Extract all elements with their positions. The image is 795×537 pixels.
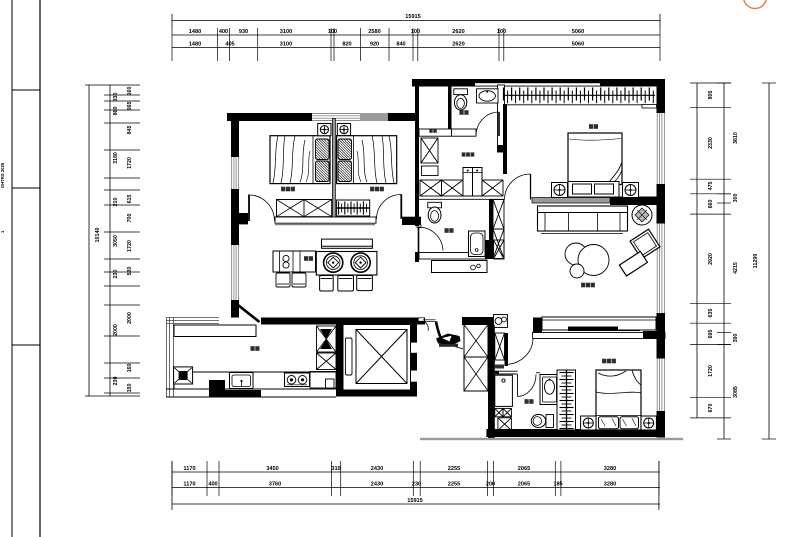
svg-text:475: 475 <box>708 182 714 191</box>
svg-text:100: 100 <box>328 29 337 35</box>
svg-text:1480: 1480 <box>189 29 201 35</box>
svg-text:2065: 2065 <box>518 466 530 472</box>
svg-text:400: 400 <box>219 29 228 35</box>
svg-text:670: 670 <box>708 404 714 413</box>
svg-text:2000: 2000 <box>127 312 133 324</box>
svg-text:635: 635 <box>708 309 714 318</box>
svg-text:2255: 2255 <box>448 482 460 488</box>
svg-text:4215: 4215 <box>733 262 739 274</box>
svg-text:150: 150 <box>127 384 133 393</box>
svg-text:330: 330 <box>113 93 119 102</box>
svg-text:805: 805 <box>708 91 714 100</box>
svg-text:10140: 10140 <box>95 228 101 243</box>
svg-text:1170: 1170 <box>183 482 195 488</box>
svg-text:1480: 1480 <box>189 42 201 48</box>
svg-text:3280: 3280 <box>604 466 616 472</box>
svg-text:2430: 2430 <box>371 482 383 488</box>
svg-text:11290: 11290 <box>753 254 759 269</box>
svg-text:2330: 2330 <box>708 137 714 149</box>
svg-text:3450: 3450 <box>266 466 278 472</box>
svg-text:860: 860 <box>113 107 119 116</box>
svg-text:695: 695 <box>708 330 714 339</box>
svg-text:5060: 5060 <box>572 42 584 48</box>
svg-text:3180: 3180 <box>113 152 119 164</box>
svg-text:530: 530 <box>127 267 133 276</box>
svg-text:2430: 2430 <box>371 466 383 472</box>
svg-text:565: 565 <box>127 102 133 111</box>
svg-text:15915: 15915 <box>405 14 421 20</box>
svg-text:15915: 15915 <box>407 498 423 504</box>
svg-text:3100: 3100 <box>280 42 292 48</box>
svg-text:845: 845 <box>127 126 133 135</box>
svg-text:3050: 3050 <box>113 235 119 247</box>
svg-text:405: 405 <box>225 42 234 48</box>
svg-text:230: 230 <box>412 482 421 488</box>
svg-text:615: 615 <box>127 195 133 204</box>
svg-text:3085: 3085 <box>733 386 739 398</box>
svg-text:3280: 3280 <box>604 482 616 488</box>
svg-text:310: 310 <box>331 466 340 472</box>
svg-text:210: 210 <box>113 198 119 207</box>
svg-text:840: 840 <box>396 42 405 48</box>
svg-text:930: 930 <box>239 29 248 35</box>
svg-text:GHTRS 2025: GHTRS 2025 <box>0 162 5 188</box>
svg-text:1170: 1170 <box>183 466 195 472</box>
svg-text:3100: 3100 <box>280 29 292 35</box>
svg-text:3760: 3760 <box>269 482 281 488</box>
svg-text:2620: 2620 <box>452 29 464 35</box>
svg-text:390: 390 <box>733 334 739 343</box>
svg-text:920: 920 <box>370 42 379 48</box>
svg-text:820: 820 <box>342 42 351 48</box>
svg-text:2065: 2065 <box>518 482 530 488</box>
svg-text:100: 100 <box>497 29 506 35</box>
svg-text:230: 230 <box>113 377 119 386</box>
svg-text:660: 660 <box>708 200 714 209</box>
svg-text:160: 160 <box>127 364 133 373</box>
svg-text:2620: 2620 <box>452 42 464 48</box>
svg-text:2580: 2580 <box>368 29 380 35</box>
svg-text:230: 230 <box>113 270 119 279</box>
svg-text:2920: 2920 <box>708 253 714 265</box>
svg-text:1720: 1720 <box>127 157 133 169</box>
svg-text:1720: 1720 <box>127 240 133 252</box>
svg-text:1720: 1720 <box>708 365 714 377</box>
svg-text:5060: 5060 <box>572 29 584 35</box>
svg-text:3610: 3610 <box>733 132 739 144</box>
svg-text:100: 100 <box>411 29 420 35</box>
svg-text:160: 160 <box>127 87 133 96</box>
svg-text:185: 185 <box>553 482 562 488</box>
svg-text:2000: 2000 <box>113 324 119 336</box>
svg-text:300: 300 <box>733 194 739 203</box>
svg-text:200: 200 <box>486 482 495 488</box>
svg-text:2255: 2255 <box>448 466 460 472</box>
svg-text:700: 700 <box>127 214 133 223</box>
svg-text:400: 400 <box>208 482 217 488</box>
